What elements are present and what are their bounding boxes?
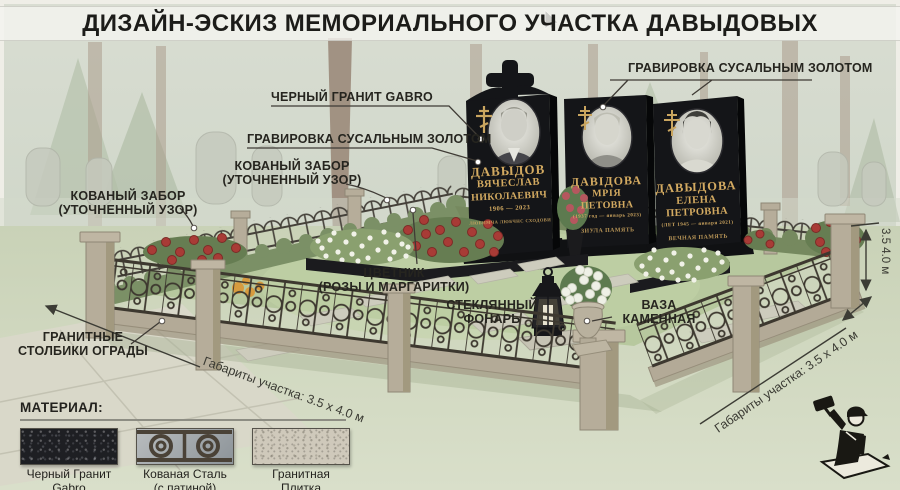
material-wrought-iron-label1: Кованая Сталь [136, 468, 234, 482]
granite-post [825, 214, 865, 308]
callout-vase-line1: ВАЗА [622, 298, 695, 312]
material-granite-tile-label2: Плитка [252, 482, 350, 490]
material-granite-tile: Гранитная Плитка [252, 428, 350, 490]
memorial-design-sketch: ДИЗАЙН-ЭСКИЗ МЕМОРИАЛЬНОГО УЧАСТКА ДАВЫД… [0, 0, 900, 490]
materials-heading: МАТЕРИАЛ: [20, 400, 352, 415]
monument-2-inscription: ДАВІДОВА МРІЯ ПЕТОВНА (1937 год — январь… [563, 173, 651, 236]
callout-fence-center: КОВАНЫЙ ЗАБОР (УТОЧНЕННЫЙ УЗОР) [223, 159, 362, 187]
callout-fence-center-line1: КОВАНЫЙ ЗАБОР [223, 159, 362, 173]
callout-granite-posts-line1: ГРАНИТНЫЕ [18, 330, 148, 344]
callout-flowerbed-line1: ЦВЕТНИК [319, 266, 470, 280]
monument-3-patronymic: ПЕТРОВНА [652, 205, 742, 221]
callout-lantern-line2: ФОНАРЬ [446, 312, 537, 326]
material-black-granite-label2: Gabro [20, 482, 118, 490]
granite-post [383, 284, 415, 392]
monument-1-years: 1906 — 2023 [465, 203, 555, 215]
callout-fence-left-line2: (УТОЧНЕННЫЙ УЗОР) [59, 203, 198, 217]
material-wrought-iron: Кованая Сталь (с патиной) [136, 428, 234, 490]
material-granite-tile-label1: Гранитная [252, 468, 350, 482]
callout-fence-center-line2: (УТОЧНЕННЫЙ УЗОР) [223, 173, 362, 187]
wrought-iron-swatch [136, 428, 234, 465]
callout-flowerbed-line2: (РОЗЫ И МАРГАРИТКИ) [319, 280, 470, 294]
materials-legend: МАТЕРИАЛ: Черный Гранит Gabro [20, 400, 352, 490]
legend-divider [20, 419, 346, 421]
callout-black-granite: ЧЕРНЫЙ ГРАНИТ GABRO [271, 90, 433, 104]
callout-engraving-right: ГРАВИРОВКА СУСАЛЬНЫМ ЗОЛОТОМ [628, 61, 873, 75]
callout-granite-posts: ГРАНИТНЫЕ СТОЛБИКИ ОГРАДЫ [18, 330, 148, 358]
granite-tile-swatch [252, 428, 350, 465]
granite-post [728, 276, 764, 392]
monument-1-inscription: ДАВЫДОВ ВЯЧЕСЛАВ НИКОЛАЕВИЧ 1906 — 2023 … [463, 161, 556, 226]
callout-flowerbed: ЦВЕТНИК (РОЗЫ И МАРГАРИТКИ) [319, 266, 470, 294]
dimension-right-vertical: 3.5 4.0 м [879, 228, 891, 274]
material-wrought-iron-label2: (с патиной) [136, 482, 234, 490]
flowerbed-daisies-center [310, 229, 414, 265]
monument-2-surname: ДАВІДОВА [563, 173, 649, 189]
monument-2-years: (1937 год — январь 2023) [564, 213, 650, 221]
title-bar: ДИЗАЙН-ЭСКИЗ МЕМОРИАЛЬНОГО УЧАСТКА ДАВЫД… [0, 6, 900, 41]
callout-fence-left-line1: КОВАНЫЙ ЗАБОР [59, 189, 198, 203]
callout-engraving-left: ГРАВИРОВКА СУСАЛЬНЫМ ЗОЛОТОМ [247, 132, 492, 146]
monument-3-years: (ЛЕТ 1945 — января 2021) [652, 220, 742, 230]
callout-vase-line2: КАМЕННАЯ [622, 312, 695, 326]
black-granite-swatch [20, 428, 118, 465]
callout-vase: ВАЗА КАМЕННАЯ [622, 298, 695, 326]
material-black-granite: Черный Гранит Gabro [20, 428, 118, 490]
callout-fence-left: КОВАНЫЙ ЗАБОР (УТОЧНЕННЫЙ УЗОР) [59, 189, 198, 217]
monument-2-patronymic: ПЕТОВНА [564, 199, 650, 213]
granite-post [191, 260, 225, 370]
monument-3-inscription: ДАВЫДОВА ЕЛЕНА ПЕТРОВНА (ЛЕТ 1945 — янва… [651, 178, 744, 244]
callout-lantern: СТЕКЛЯННЫЙ ФОНАРЬ [446, 298, 537, 326]
callout-lantern-line1: СТЕКЛЯННЫЙ [446, 298, 537, 312]
iron-scroll-icon [137, 429, 232, 463]
material-black-granite-label1: Черный Гранит [20, 468, 118, 482]
callout-granite-posts-line2: СТОЛБИКИ ОГРАДЫ [18, 344, 148, 358]
page-title: ДИЗАЙН-ЭСКИЗ МЕМОРИАЛЬНОГО УЧАСТКА ДАВЫД… [82, 10, 818, 38]
